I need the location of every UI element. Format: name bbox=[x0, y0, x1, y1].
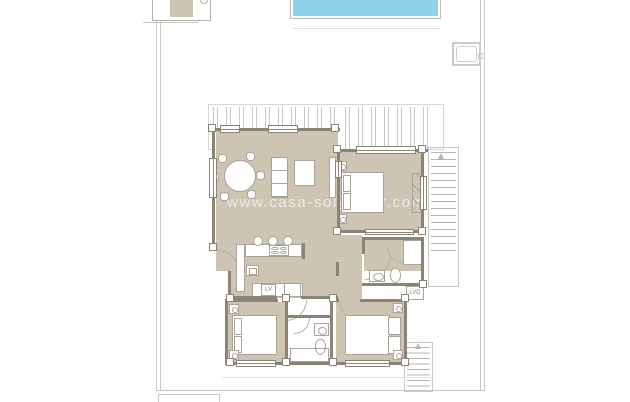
watermark: www.casa-solyamar.com bbox=[227, 194, 426, 211]
door-arc-bathroom-mid bbox=[294, 318, 310, 334]
dining-chair bbox=[220, 192, 229, 201]
stairs-bottom-treads bbox=[407, 347, 430, 391]
wall-bathmid-left bbox=[285, 299, 288, 365]
site-boundary-left-outer bbox=[156, 0, 157, 391]
wall-post bbox=[329, 294, 337, 302]
pillow bbox=[234, 318, 242, 335]
shower-top-right bbox=[403, 240, 422, 265]
bathroom-sink bbox=[369, 270, 385, 282]
lamp bbox=[340, 217, 346, 223]
kitchen-counter-left bbox=[236, 244, 245, 292]
site-feature-bottom-left bbox=[158, 394, 220, 402]
bar-stool bbox=[283, 236, 293, 246]
wall-post bbox=[419, 280, 427, 288]
wall-bedbr-left bbox=[330, 299, 333, 365]
bar-stool bbox=[268, 236, 278, 246]
sliding-door-bedtr-terrace bbox=[365, 229, 414, 235]
bed-bottom-right bbox=[345, 315, 390, 355]
window-living-left bbox=[209, 158, 217, 198]
pool-deck-line bbox=[293, 28, 440, 29]
outdoor-shower-knob bbox=[478, 53, 483, 59]
wall-bathtr-left bbox=[362, 237, 365, 254]
bathroom-sink bbox=[314, 323, 329, 336]
wall-post bbox=[329, 358, 337, 366]
wall-post bbox=[209, 243, 217, 251]
pool bbox=[290, 0, 441, 19]
wall-post bbox=[282, 358, 290, 366]
sink-bowl bbox=[373, 273, 384, 281]
window-bedtr-top bbox=[356, 146, 416, 154]
wall-bathtr-top bbox=[362, 237, 424, 240]
window-bedbr-bottom bbox=[345, 360, 390, 367]
kitchen-sink-unit bbox=[246, 265, 259, 276]
kitchen-counter-bottom bbox=[252, 283, 303, 297]
dishwasher-box: LV bbox=[261, 284, 276, 296]
dining-table bbox=[224, 160, 256, 192]
floor-plan: www.casa-solyamar.com bbox=[0, 0, 630, 402]
window-bedbl-bottom bbox=[236, 360, 276, 367]
wall-bathtr-bottom bbox=[362, 283, 424, 286]
dining-chair bbox=[256, 171, 265, 180]
lamp bbox=[396, 306, 402, 312]
wall-bedbr-top-b bbox=[360, 299, 407, 302]
outdoor-shower-tray bbox=[456, 46, 477, 62]
wall-bathtr-right bbox=[421, 237, 424, 286]
wall-post bbox=[401, 294, 409, 302]
dining-chair bbox=[246, 152, 255, 161]
entry-structure-step-line bbox=[143, 22, 198, 23]
coffee-table bbox=[294, 160, 315, 186]
burner bbox=[271, 247, 279, 250]
dishwasher-label: LV bbox=[265, 287, 272, 293]
stairs-up-arrow bbox=[438, 153, 444, 159]
window-living-top-2 bbox=[268, 125, 298, 133]
wall-bathmid-top bbox=[285, 315, 333, 318]
site-boundary-right-outer bbox=[484, 0, 485, 391]
entry-structure-floor bbox=[170, 0, 193, 17]
wall-post bbox=[282, 294, 290, 302]
overhang-line bbox=[222, 377, 433, 378]
wall-post bbox=[333, 227, 341, 235]
sink-bowl bbox=[249, 268, 257, 275]
wall-post bbox=[418, 145, 426, 153]
dining-chair bbox=[247, 190, 256, 199]
burner bbox=[280, 247, 288, 250]
nightstand bbox=[229, 304, 239, 314]
burner bbox=[271, 251, 279, 254]
nightstand bbox=[393, 303, 403, 313]
site-boundary-left-inner bbox=[160, 0, 161, 391]
wall-post bbox=[208, 124, 216, 132]
kitchen-hob bbox=[269, 245, 289, 256]
stairs-up-arrow bbox=[415, 343, 421, 349]
wall-post bbox=[401, 358, 409, 366]
hallway-floor bbox=[338, 235, 362, 302]
wall-post bbox=[418, 227, 426, 235]
wall-post bbox=[333, 145, 341, 153]
wall-post bbox=[226, 358, 234, 366]
lamp bbox=[232, 307, 238, 313]
wall-post bbox=[226, 294, 234, 302]
window-bedtr-left bbox=[335, 161, 342, 178]
headboard-cushion bbox=[388, 317, 401, 335]
pergola-slats-right bbox=[345, 107, 428, 149]
burner bbox=[280, 251, 288, 254]
outdoor-shower-pad bbox=[452, 42, 481, 66]
laundry-closet-label: LVD bbox=[409, 290, 420, 296]
wall-post bbox=[331, 124, 339, 132]
pool-water bbox=[293, 0, 438, 16]
window-living-top-1 bbox=[220, 125, 240, 133]
toilet bbox=[390, 268, 401, 283]
wall-bedbr-right bbox=[404, 299, 407, 365]
shower-tray-mid bbox=[290, 348, 329, 362]
site-boundary-bottom bbox=[156, 390, 485, 391]
wall-bedbl-left bbox=[225, 299, 228, 365]
sink-bowl bbox=[318, 327, 327, 335]
dining-chair bbox=[218, 154, 227, 163]
pillow bbox=[343, 175, 351, 192]
bar-stool bbox=[253, 236, 263, 246]
pillow bbox=[343, 193, 351, 210]
wall-hall-living bbox=[336, 262, 339, 276]
wall-bathmid-bottom bbox=[288, 362, 333, 365]
stairs-right-treads bbox=[431, 152, 456, 257]
wall-kitchen-right bbox=[302, 243, 305, 259]
sofa bbox=[271, 157, 288, 198]
window-bedtr-right bbox=[420, 176, 427, 210]
